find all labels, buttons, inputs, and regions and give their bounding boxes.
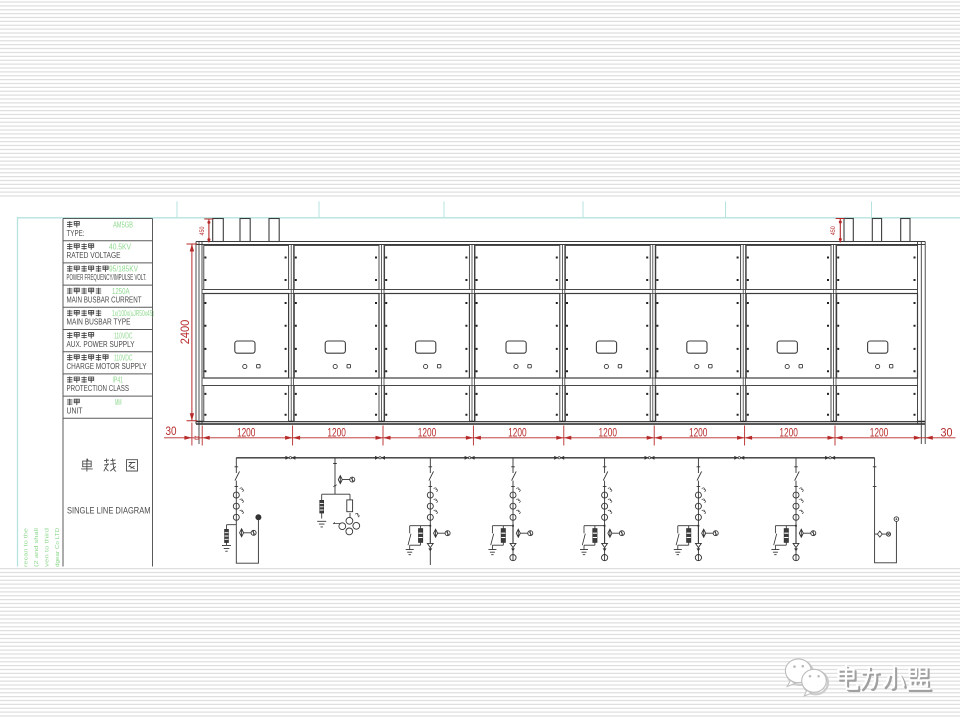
svg-text:MAIN BUSBAR TYPE: MAIN BUSBAR TYPE <box>67 318 131 327</box>
svg-text:1250A: 1250A <box>112 287 130 296</box>
svg-text:TYPE:: TYPE: <box>67 229 85 238</box>
svg-text:450: 450 <box>199 226 206 235</box>
svg-text:UNIT: UNIT <box>67 406 83 415</box>
svg-text:IP41: IP41 <box>113 376 124 385</box>
svg-text:1200: 1200 <box>779 428 798 440</box>
svg-text:MAIN BUSBAR CURRENT: MAIN BUSBAR CURRENT <box>67 295 142 304</box>
svg-text:SINGLE LINE DIAGRAM: SINGLE LINE DIAGRAM <box>67 506 151 516</box>
svg-text:POWER FREQUENCY/IMPULSE VOLT.: POWER FREQUENCY/IMPULSE VOLT. <box>67 273 147 282</box>
svg-text:450: 450 <box>830 226 837 235</box>
svg-text:ven to third: ven to third <box>45 528 51 567</box>
svg-text:1x(100x(uJR50x45): 1x(100x(uJR50x45) <box>112 309 154 318</box>
svg-text:AM5GB: AM5GB <box>113 220 133 229</box>
svg-text:recan to the: recan to the <box>24 528 30 567</box>
svg-text:1200: 1200 <box>418 428 437 440</box>
svg-text:RATED VOLTAGE: RATED VOLTAGE <box>67 251 121 260</box>
svg-text:110VDC: 110VDC <box>114 331 133 340</box>
svg-text:95/185KV: 95/185KV <box>109 265 139 274</box>
svg-text:1200: 1200 <box>689 428 708 440</box>
svg-text:110VDC: 110VDC <box>114 354 133 363</box>
svg-text:(2 and shall: (2 and shall <box>34 528 40 567</box>
svg-text:40.5KV: 40.5KV <box>109 243 132 252</box>
svg-text:1200: 1200 <box>327 428 346 440</box>
svg-text:PROTECTION CLASS: PROTECTION CLASS <box>67 384 130 393</box>
svg-text:AUX. POWER SUPPLY: AUX. POWER SUPPLY <box>67 340 136 349</box>
svg-text:2400: 2400 <box>180 320 192 345</box>
svg-text:1200: 1200 <box>870 428 889 440</box>
svg-text:30: 30 <box>941 428 953 440</box>
svg-text:dgear Co LTD: dgear Co LTD <box>55 528 61 567</box>
svg-text:1200: 1200 <box>599 428 618 440</box>
svg-text:CHARGE MOTOR SUPPLY: CHARGE MOTOR SUPPLY <box>67 362 148 371</box>
svg-text:1200: 1200 <box>508 428 527 440</box>
svg-text:1200: 1200 <box>237 428 256 440</box>
svg-text:30: 30 <box>166 426 177 438</box>
svg-text:MM: MM <box>115 398 122 407</box>
